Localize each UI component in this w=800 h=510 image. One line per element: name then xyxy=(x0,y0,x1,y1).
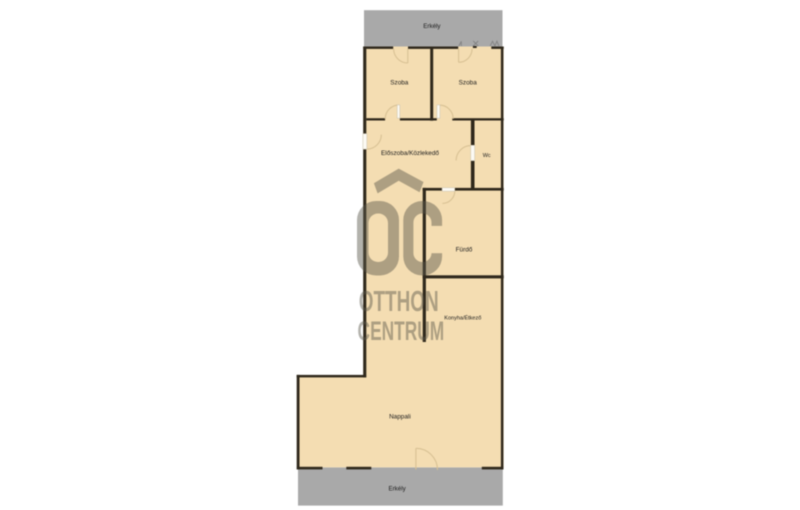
svg-text:Erkély: Erkély xyxy=(388,485,406,492)
svg-text:Előszoba/Közlekedő: Előszoba/Közlekedő xyxy=(381,150,439,157)
svg-text:Szoba: Szoba xyxy=(459,79,478,86)
svg-text:Szoba: Szoba xyxy=(390,79,409,86)
svg-text:Erkély: Erkély xyxy=(423,23,441,30)
svg-text:OTTHON: OTTHON xyxy=(359,286,439,318)
svg-text:Fürdő: Fürdő xyxy=(456,247,473,254)
svg-text:Konyha/Étkező: Konyha/Étkező xyxy=(444,314,481,321)
svg-text:Wc: Wc xyxy=(483,153,491,159)
svg-text:CENTRUM: CENTRUM xyxy=(358,315,445,346)
svg-text:Nappali: Nappali xyxy=(389,413,411,420)
